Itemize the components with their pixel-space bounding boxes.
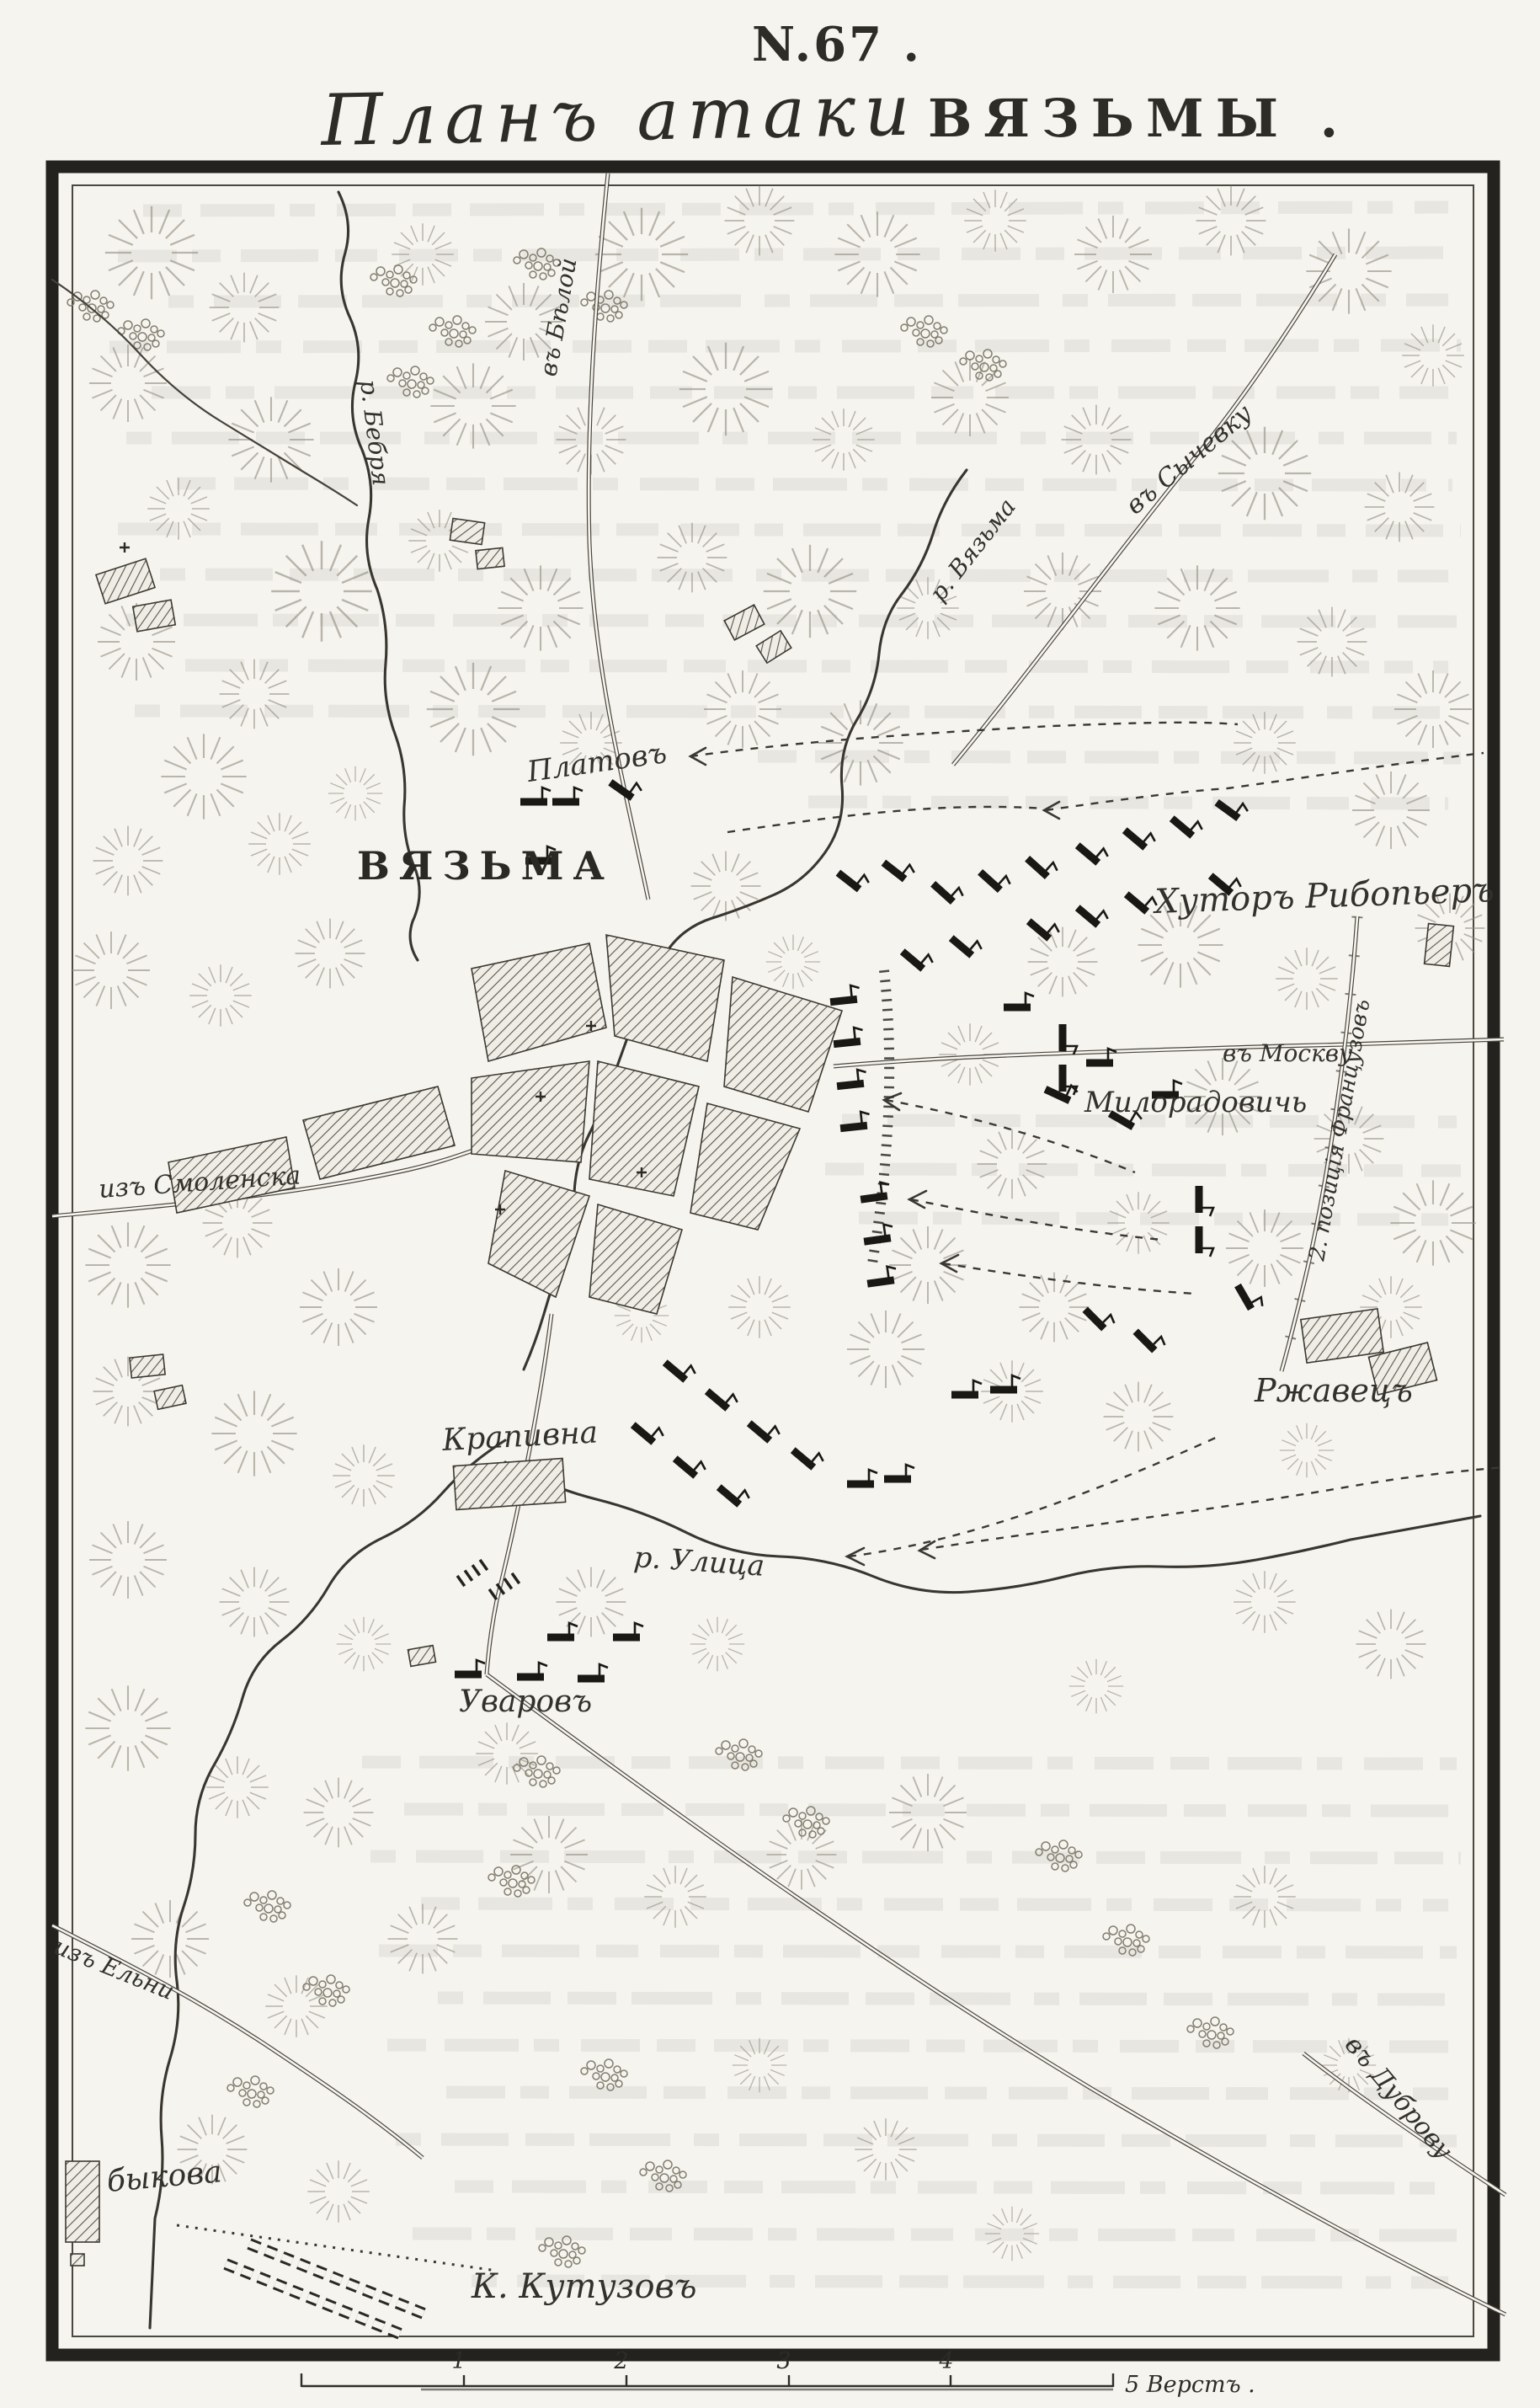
scale-end-label: 5 Верстъ . [1125,2372,1255,2398]
scale-tick-4: 4 [938,2348,953,2374]
scale-tick-1: 1 [451,2348,466,2374]
label-rzhavets: Ржавецъ [1254,1372,1413,1409]
label-k-kutuzov: К. Кутузовъ [471,2267,697,2306]
plate-number: N.67 . [752,17,922,72]
map-title-caps: ВЯЗЬМЫ . [928,88,1350,149]
label-miloradovich: Милорадовичь [1084,1086,1307,1119]
map-canvas: N.67 . Планъ атаки ВЯЗЬМЫ . [0,0,1540,2408]
map-title-script: Планъ атаки [319,69,919,162]
scale-tick-3: 3 [776,2348,791,2374]
scale-tick-2: 2 [613,2348,628,2374]
label-v-moskvu: въ Москву [1223,1039,1353,1067]
label-uvarov: Уваровъ [459,1685,592,1719]
scanned-map-page: N.67 . Планъ атаки ВЯЗЬМЫ . [0,0,1540,2408]
label-vyazma-city: ВЯЗЬМА [357,843,614,889]
